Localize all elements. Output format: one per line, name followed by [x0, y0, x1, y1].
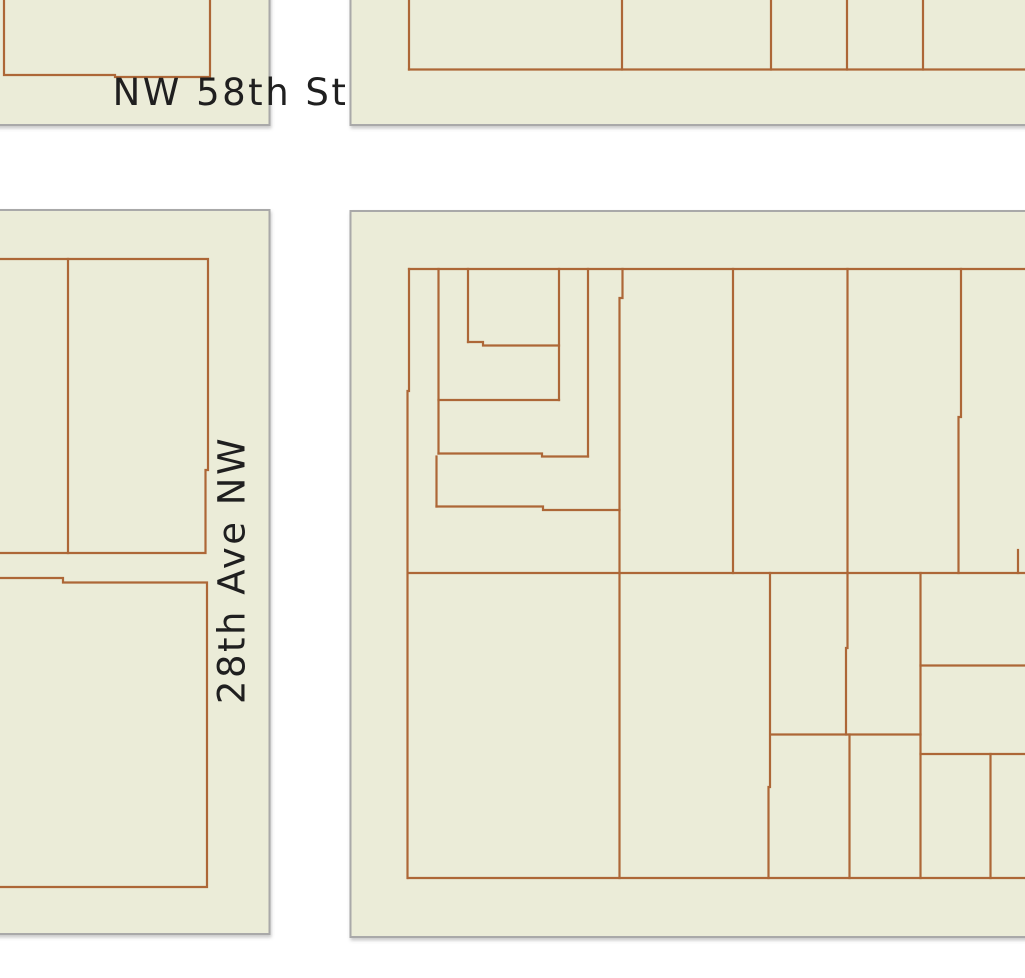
street-label-nw-58th-st: NW 58th St — [113, 71, 349, 114]
map-viewport[interactable]: NW 58th St28th Ave NW — [0, 0, 1025, 978]
map-canvas[interactable]: NW 58th St28th Ave NW — [0, 0, 1025, 978]
street-label-28th-ave-nw: 28th Ave NW — [211, 436, 254, 704]
